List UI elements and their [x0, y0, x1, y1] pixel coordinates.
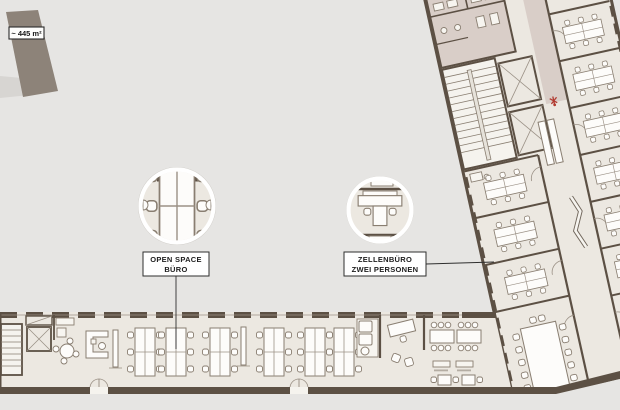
callout-open-space: OPEN SPACE BÜRO: [143, 252, 209, 276]
desk-cluster: [128, 328, 163, 376]
area-badge: ~ 445 m²: [9, 27, 44, 39]
partition-panel: [241, 327, 246, 365]
desk-cluster: [257, 328, 292, 376]
desk-cluster: [327, 328, 362, 376]
detail-circle-cell-office: [347, 177, 414, 244]
partition-panel: [113, 330, 118, 367]
open-space-wing: [0, 312, 512, 392]
tiny-illegible-label: [457, 370, 471, 372]
tiny-illegible-label: [434, 370, 448, 372]
kitchenette: [357, 315, 380, 358]
callout-zellenbuero: ZELLENBÜRO ZWEI PERSONEN: [344, 252, 426, 276]
door-gap: [90, 387, 108, 394]
callout-zellenbuero-line2: ZWEI PERSONEN: [352, 265, 419, 274]
desk-cluster: [203, 328, 238, 376]
callout-open-space-line1: OPEN SPACE: [150, 255, 202, 264]
area-badge-label: ~ 445 m²: [11, 29, 42, 38]
callout-open-space-line2: BÜRO: [164, 265, 187, 274]
callout-zellenbuero-line1: ZELLENBÜRO: [358, 255, 412, 264]
door-gap: [290, 387, 308, 394]
floor-plan-canvas: OPEN SPACE BÜRO ZELLENBÜRO ZWEI PERSONEN…: [0, 0, 620, 410]
floor-plan-drawing: OPEN SPACE BÜRO ZELLENBÜRO ZWEI PERSONEN…: [0, 0, 620, 410]
